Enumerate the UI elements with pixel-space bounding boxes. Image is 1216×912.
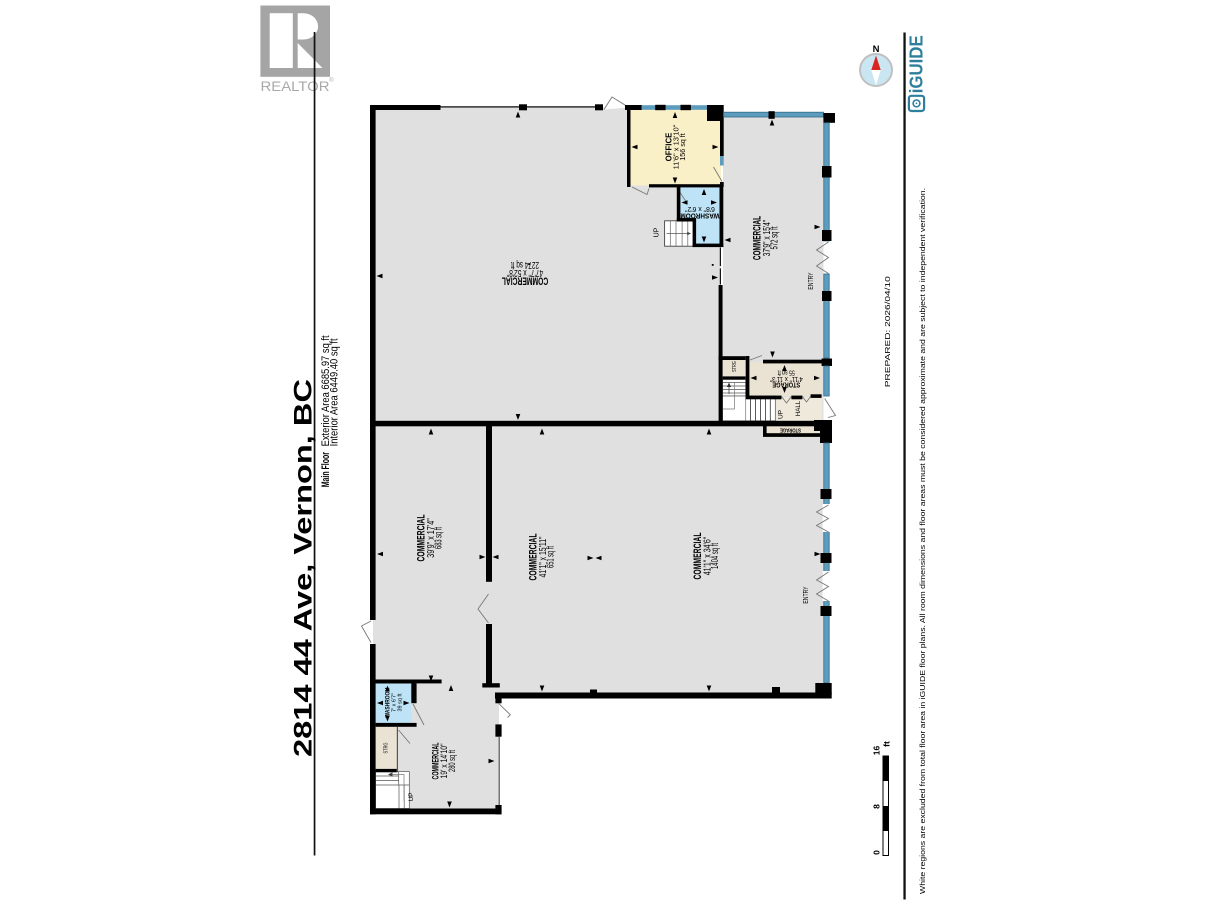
svg-text:ENTRY: ENTRY <box>801 586 810 603</box>
svg-text:STRG: STRG <box>384 743 390 754</box>
svg-text:STORAGE: STORAGE <box>780 426 801 432</box>
svg-text:39 sq ft: 39 sq ft <box>398 693 404 711</box>
svg-text:7' x 6'7": 7' x 6'7" <box>392 693 398 712</box>
svg-text:WASHROOM: WASHROOM <box>385 688 391 718</box>
svg-text:16: 16 <box>872 746 882 756</box>
svg-text:1404 sq ft: 1404 sq ft <box>710 543 721 569</box>
svg-text:2274 sq ft: 2274 sq ft <box>511 259 539 270</box>
svg-text:STRG: STRG <box>732 361 738 372</box>
svg-text:Interior Area 6449.40 sq ft: Interior Area 6449.40 sq ft <box>328 338 340 446</box>
svg-text:651 sq ft: 651 sq ft <box>546 546 557 568</box>
svg-text:0: 0 <box>872 850 882 855</box>
svg-text:8: 8 <box>872 804 882 809</box>
svg-text:UP: UP <box>408 792 415 801</box>
svg-text:UP: UP <box>778 410 785 419</box>
svg-text:UP: UP <box>654 227 661 237</box>
svg-text:ft: ft <box>881 741 891 747</box>
svg-text:280 sq ft: 280 sq ft <box>447 750 457 772</box>
svg-text:ENTRY: ENTRY <box>806 272 815 289</box>
svg-text:N: N <box>873 44 880 55</box>
svg-text:iGUIDE: iGUIDE <box>906 35 926 93</box>
svg-text:HALL: HALL <box>795 401 802 417</box>
svg-text:2814 44 Ave, Vernon, BC: 2814 44 Ave, Vernon, BC <box>290 379 318 757</box>
svg-text:Main Floor: Main Floor <box>320 452 332 488</box>
svg-text:683 sq ft: 683 sq ft <box>434 527 445 549</box>
svg-text:6'8" x 6'2": 6'8" x 6'2" <box>685 205 715 212</box>
svg-text:572 sq ft: 572 sq ft <box>769 226 780 249</box>
svg-text:®: ® <box>329 77 334 84</box>
svg-text:PREPARED: 2026/04/10: PREPARED: 2026/04/10 <box>883 276 892 387</box>
svg-text:White regions are excluded fro: White regions are excluded from total fl… <box>918 188 927 894</box>
svg-text:55 sq ft: 55 sq ft <box>778 368 795 375</box>
svg-text:REALTOR: REALTOR <box>261 79 330 94</box>
svg-text:156 sq ft: 156 sq ft <box>678 132 687 160</box>
